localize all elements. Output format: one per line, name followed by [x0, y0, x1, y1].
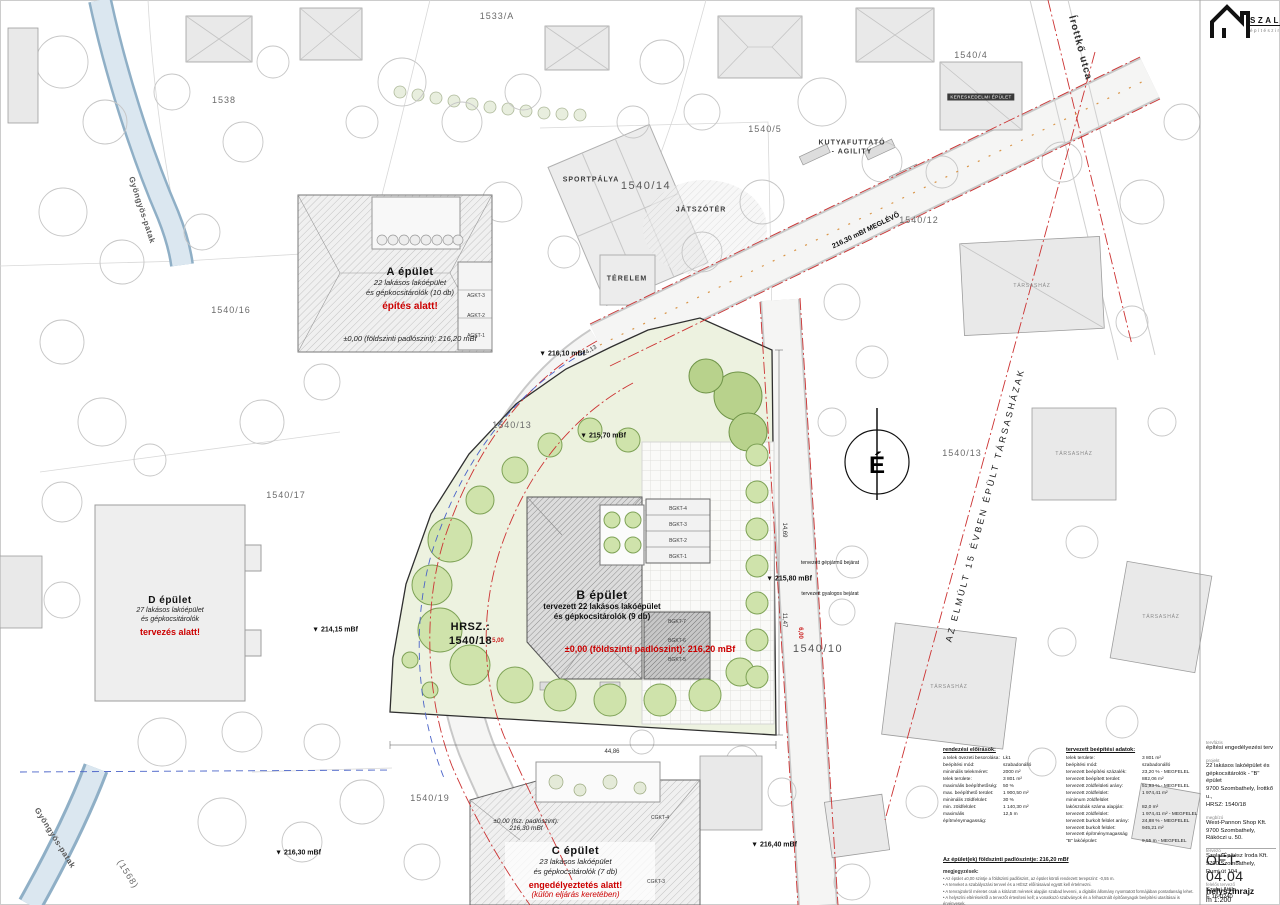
row-label: lakószobák száma alapján: [1066, 805, 1142, 812]
row-label: max. beépíthető terület: [943, 791, 1003, 798]
row-value: 945,21 m² [1142, 826, 1198, 833]
building-b-desc2: és gépkocsitárolók (9 db) [518, 612, 686, 622]
row-label: beépítési mód: [1066, 763, 1142, 770]
project-line: 22 lakásos lakóépület és [1206, 763, 1276, 771]
row-value: szabadonálló [1003, 763, 1059, 770]
row-label: minimális zöldfelület: [943, 798, 1003, 805]
building-c-desc2: és gépkocsitárolók (7 db) [493, 867, 658, 877]
planned-data-title: tervezett beépítési adatok: [1066, 747, 1198, 753]
client-line: 9700 Szombathely, [1206, 828, 1276, 836]
building-d-status: tervezés alatt! [98, 627, 242, 637]
data-row: tervezett beépített terület:882,06 m² [1066, 777, 1198, 784]
project-line: 9700 Szombathely, Írottkő u., [1206, 786, 1276, 802]
row-value: 1 140,30 m² [1003, 805, 1059, 812]
hrsz-line1: HRSZ.: [428, 620, 513, 634]
logo: SZALAI építésziroda [1250, 10, 1280, 33]
remark-item: • A helyszíni eltérésekről a tervezőt ér… [943, 895, 1198, 905]
building-d-title: D épület [98, 595, 242, 606]
data-row: tervezett zöldfelületi arány:51,93 % - M… [1066, 784, 1198, 791]
building-c-title: C épület [493, 845, 658, 857]
building-b-title: B épület [518, 588, 686, 602]
regulations-title: rendezési előírások: [943, 747, 1059, 753]
data-row: maximális beépíthetőség:50 % [943, 784, 1059, 791]
project-line: gépkocsitárolók - "B" épület [1206, 771, 1276, 787]
data-row: tervezett zöldfelület:1 974,41 m² - MEGF… [1066, 812, 1198, 819]
site-plan-sheet: 1533/A15381540/41540/51540/121540/141540… [0, 0, 1280, 905]
row-value: 9,55 m - MEGFELEL [1142, 839, 1198, 846]
data-row: telek területe:3 801 m² [1066, 756, 1198, 763]
building-c-level2: 216,30 mBf [484, 825, 568, 832]
row-value: 1 974,41 m² - MEGFELEL [1142, 812, 1198, 819]
row-label: min. zöldfelület: [943, 805, 1003, 812]
data-row: telek területe:3 801 m² [943, 777, 1059, 784]
row-label: minimum zöldfelület [1066, 798, 1142, 805]
hrsz-line2: 1540/18 [428, 634, 513, 648]
row-label: tervezett beépített terület: [1066, 777, 1142, 784]
row-value: 882,06 m² [1142, 777, 1198, 784]
site-hrsz-label: HRSZ.: 1540/18 [428, 620, 513, 649]
remark-item: • A tervrajzokról méretet csak a kótázot… [943, 889, 1198, 895]
data-row: minimális zöldfelület:30 % [943, 798, 1059, 805]
building-d-label-block: D épület 27 lakásos lakóépület és gépkoc… [98, 595, 242, 637]
client-line: West-Pannon Shop Kft. [1206, 820, 1276, 828]
remarks-list: • Az épület ±0,00 szintje a földszinti p… [943, 876, 1198, 905]
data-row: a telek övezeti besorolása:Lk1 [943, 756, 1059, 763]
data-row: tervezett burkolt felület arány:24,88 % … [1066, 819, 1198, 826]
building-b-label-block: B épület tervezett 22 lakásos lakóépület… [518, 588, 686, 623]
building-b-level: ±0,00 (földszinti padlószint): 216,20 mB… [540, 644, 760, 654]
building-d-desc1: 27 lakásos lakóépület [98, 606, 242, 615]
planned-data-rows: telek területe:3 801 m²beépítési mód:sza… [1066, 756, 1198, 846]
row-value: szabadonálló [1142, 763, 1198, 770]
building-a-status: építés alatt! [328, 301, 492, 312]
row-value: 23,20 % - MEGFELEL [1142, 770, 1198, 777]
row-value: 3 801 m² [1142, 756, 1198, 763]
data-row: beépítési mód:szabadonálló [943, 763, 1059, 770]
row-label: minimális telekméret: [943, 770, 1003, 777]
building-c-status: engedélyeztetés alatt! [493, 880, 658, 890]
building-b-desc1: tervezett 22 lakásos lakóépület [518, 602, 686, 612]
building-a-title: A épület [328, 266, 492, 278]
row-label: tervezett zöldfelület: [1066, 791, 1142, 798]
planned-data-table: tervezett beépítési adatok: telek terüle… [1066, 747, 1198, 846]
building-a-desc2: és gépkocsitárolók (10 db) [328, 288, 492, 298]
title-block-sheet-info: OÉT-04.04 helyszínrajz m 1:200 dátum 202… [1206, 848, 1276, 905]
row-label: telek területe: [943, 777, 1003, 784]
regulations-rows: a telek övezeti besorolása:Lk1beépítési … [943, 756, 1059, 826]
row-label: a telek övezeti besorolása: [943, 756, 1003, 763]
row-value: 3 801 m² [1003, 777, 1059, 784]
data-row: maximális építménymagasság:12,5 m [943, 812, 1059, 826]
logo-name: SZALAI [1250, 16, 1280, 26]
row-value: 24,88 % - MEGFELEL [1142, 819, 1198, 826]
row-label: tervezett beépítési százalék: [1066, 770, 1142, 777]
row-label: maximális építménymagasság: [943, 812, 1003, 826]
building-c-desc1: 23 lakásos lakóépület [493, 857, 658, 867]
row-label: "B" lakóépület: [1066, 839, 1142, 846]
row-value: 1 974,41 m² [1142, 791, 1198, 798]
row-label: maximális beépíthetőség: [943, 784, 1003, 791]
remarks-title: megjegyzések: [943, 869, 1198, 875]
row-label: tervezett zöldfelületi arány: [1066, 784, 1142, 791]
row-value: 50 % [1003, 784, 1059, 791]
row-value: 30 % [1003, 798, 1059, 805]
data-row: minimális telekméret:2000 m² [943, 770, 1059, 777]
sheet-number: OÉT-04.04 [1206, 852, 1276, 884]
building-a-desc1: 22 lakásos lakóépület [328, 278, 492, 288]
row-value [1142, 798, 1198, 805]
data-row: tervezett zöldfelület:1 974,41 m² [1066, 791, 1198, 798]
building-c-level1: ±0,00 (fsz. padlószint): [484, 818, 568, 825]
building-c-level: ±0,00 (fsz. padlószint): 216,30 mBf [484, 818, 568, 832]
row-value: 51,93 % - MEGFELEL [1142, 784, 1198, 791]
row-label: beépítési mód: [943, 763, 1003, 770]
data-row: minimum zöldfelület [1066, 798, 1198, 805]
data-row: tervezett beépítési százalék:23,20 % - M… [1066, 770, 1198, 777]
row-value: 82,0 m² [1142, 805, 1198, 812]
building-d-desc2: és gépkocsitárolók [98, 615, 242, 624]
row-value: Lk1 [1003, 756, 1059, 763]
logo-subtitle: építésziroda [1250, 28, 1280, 33]
building-c-status2: (külön eljárás keretében) [493, 890, 658, 899]
data-row: lakószobák száma alapján:82,0 m² [1066, 805, 1198, 812]
data-row: min. zöldfelület:1 140,30 m² [943, 805, 1059, 812]
row-value: 12,5 m [1003, 812, 1059, 826]
row-value: 1 900,50 m² [1003, 791, 1059, 798]
row-label: telek területe: [1066, 756, 1142, 763]
client-line: Rákóczi u. 50. [1206, 835, 1276, 843]
remarks-block: megjegyzések: • Az épület ±0,00 szintje … [943, 869, 1198, 905]
row-value: 2000 m² [1003, 770, 1059, 777]
phase-value: építési engedélyezési terv [1206, 745, 1276, 753]
row-label: tervezett zöldfelület: [1066, 812, 1142, 819]
building-a-label-block: A épület 22 lakásos lakóépület és gépkoc… [328, 266, 492, 312]
data-row: max. beépíthető terület:1 900,50 m² [943, 791, 1059, 798]
data-row: beépítési mód:szabadonálló [1066, 763, 1198, 770]
floor-level-note: Az épület(ek) földszinti padlószintje: 2… [943, 857, 1198, 863]
building-a-level: ±0,00 (földszinti padlószint): 216,20 mB… [318, 334, 502, 343]
sheet-name: helyszínrajz [1206, 886, 1276, 896]
data-row: "B" lakóépület:9,55 m - MEGFELEL [1066, 839, 1198, 846]
regulations-table: rendezési előírások: a telek övezeti bes… [943, 747, 1059, 826]
building-c-label-block: C épület 23 lakásos lakóépület és gépkoc… [493, 845, 658, 899]
project-line: HRSZ: 1540/18 [1206, 802, 1276, 810]
sheet-scale: m 1:200 [1206, 897, 1276, 904]
row-label: tervezett burkolt felület arány: [1066, 819, 1142, 826]
